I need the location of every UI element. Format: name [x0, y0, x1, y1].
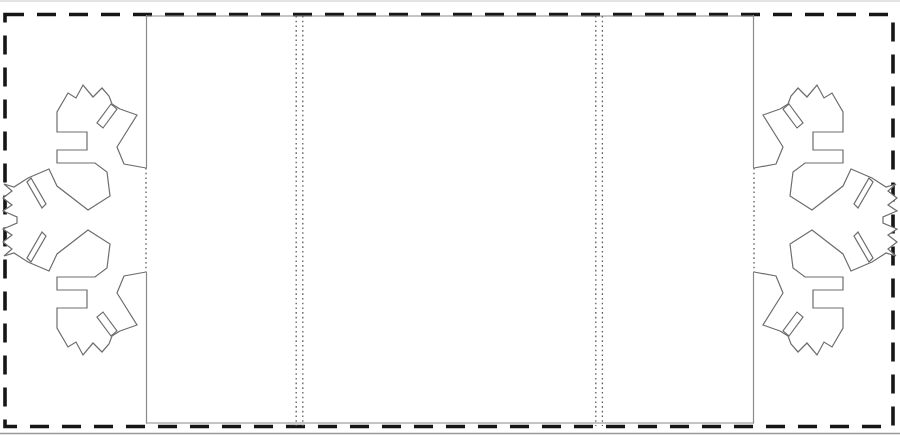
template-sheet	[0, 0, 900, 435]
template-canvas	[0, 0, 900, 435]
